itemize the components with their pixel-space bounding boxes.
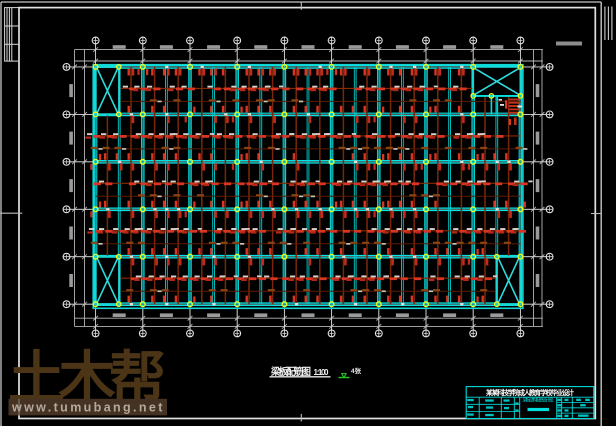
svg-text:某某科技学院成人教育 学校毕业设计: 某某科技学院成人教育 学校毕业设计	[486, 388, 574, 397]
svg-text:www.tumubang.net: www.tumubang.net	[11, 401, 163, 415]
svg-text:梁板配筋图: 梁板配筋图	[270, 366, 311, 378]
svg-text:梁板结构配筋设计图: 梁板结构配筋设计图	[523, 396, 554, 403]
svg-text:1:100: 1:100	[314, 368, 330, 377]
svg-text:4张: 4张	[351, 366, 362, 375]
